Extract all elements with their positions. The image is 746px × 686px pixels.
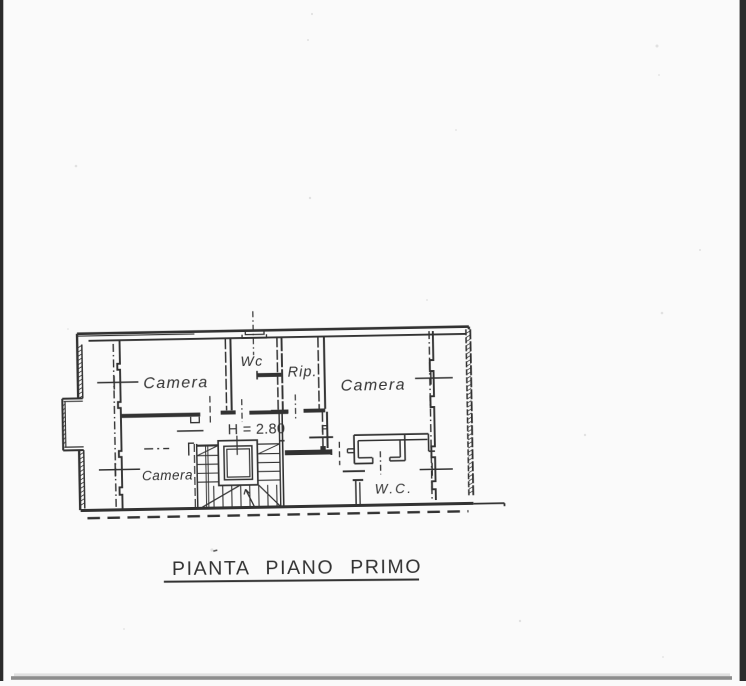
svg-text:W.C.: W.C. [375,481,414,497]
svg-text:Camera: Camera [143,374,209,392]
svg-text:Camera: Camera [142,467,193,483]
svg-text:PIANTA PIANO PRIMO: PIANTA PIANO PRIMO [172,556,422,580]
svg-text:Camera: Camera [340,376,406,394]
svg-text:Wc: Wc [240,353,264,369]
svg-text:Rip.: Rip. [287,364,317,381]
svg-text:H = 2.80: H = 2.80 [228,421,286,438]
